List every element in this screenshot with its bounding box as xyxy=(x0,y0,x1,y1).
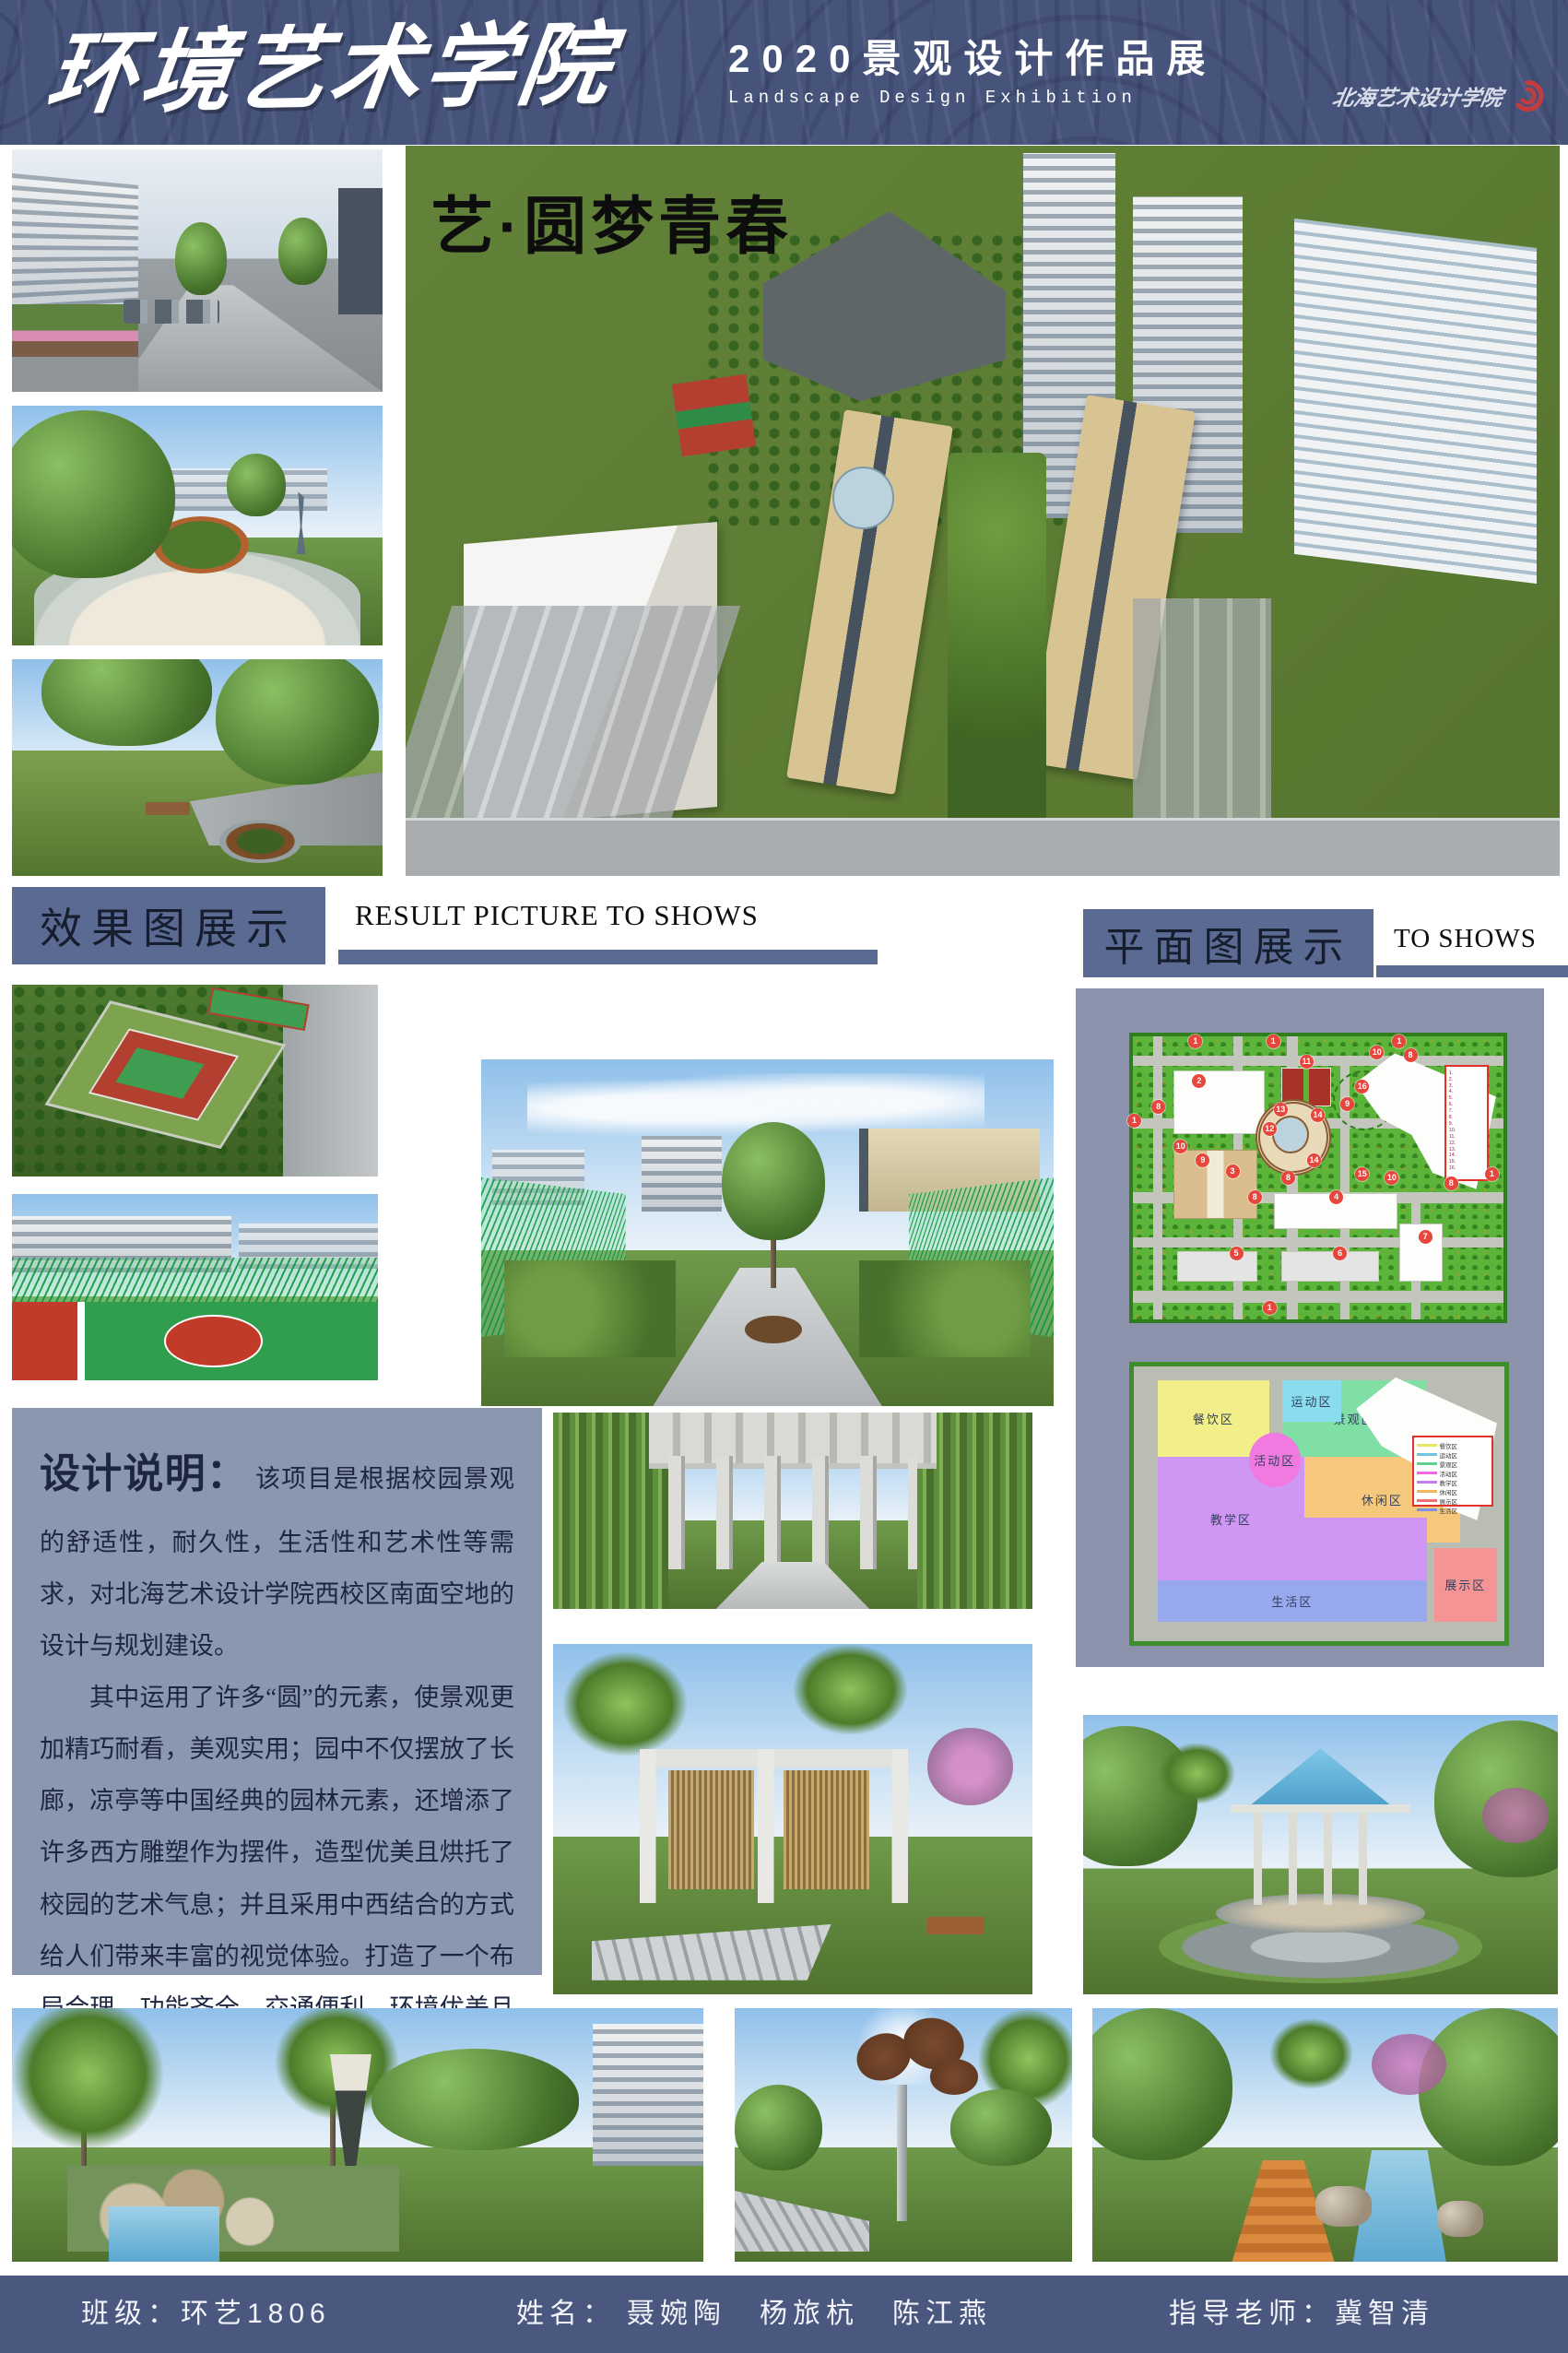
rock xyxy=(1437,2201,1484,2237)
tree xyxy=(1419,2008,1559,2166)
hedge xyxy=(504,1260,676,1357)
hedge xyxy=(859,1260,1031,1357)
zone-label: 展示区 xyxy=(1444,1576,1486,1593)
marker-number: 3 xyxy=(1231,1166,1235,1176)
legend-label: 运动区 xyxy=(1440,1450,1458,1460)
plan-number-marker: 1 xyxy=(1392,1035,1406,1048)
palm-tree xyxy=(793,1644,908,1735)
sculpture-stem xyxy=(897,2085,907,2222)
photo-lattice-pergola xyxy=(553,1644,1032,1994)
bench xyxy=(146,802,190,815)
swirl-logo-icon xyxy=(1511,79,1544,112)
zoning-legend-row: 教学区 xyxy=(1417,1478,1489,1487)
plan-number-marker: 16 xyxy=(1355,1080,1369,1094)
legend-color-chip xyxy=(1417,1472,1437,1474)
parking-lot xyxy=(1133,598,1271,839)
marker-number: 8 xyxy=(1253,1192,1257,1201)
court-line xyxy=(77,1302,85,1380)
legend-label: 休闲区 xyxy=(1440,1487,1458,1496)
legend-label: 景观区 xyxy=(1440,1460,1458,1469)
plan-number-marker: 8 xyxy=(1248,1190,1262,1204)
marker-number: 11 xyxy=(1303,1057,1312,1066)
pergola-columns xyxy=(668,1456,917,1570)
stone-path xyxy=(592,1924,831,1981)
plan-number-marker: 2 xyxy=(1192,1074,1206,1088)
marker-number: 8 xyxy=(1449,1178,1454,1188)
design-notes-text: 设计说明：该项目是根据校园景观的舒适性，耐久性，生活性和艺术性等需求，对北海艺术… xyxy=(40,1432,514,1672)
marker-number: 9 xyxy=(1345,1099,1350,1108)
plan-number-marker: 4 xyxy=(1329,1190,1343,1204)
hero-slogan: 艺·圆梦青春 xyxy=(431,175,794,266)
accent-bar xyxy=(1376,965,1568,977)
plan-number-marker: 1 xyxy=(1127,1114,1141,1128)
flowering-tree xyxy=(1372,2034,1446,2095)
marker-number: 8 xyxy=(1286,1173,1291,1182)
tree xyxy=(371,2049,579,2150)
marker-number: 1 xyxy=(1271,1036,1276,1046)
exhibition-heading: 2020景观设计作品展 Landscape Design Exhibition xyxy=(728,28,1217,108)
zone-label: 生活区 xyxy=(1271,1592,1313,1610)
header-banner: 环境艺术学院 2020景观设计作品展 Landscape Design Exhi… xyxy=(0,0,1568,145)
marker-number: 6 xyxy=(1338,1248,1342,1258)
school-seal: 北海艺术设计学院 xyxy=(1333,79,1544,112)
zoning-legend-row: 餐饮区 xyxy=(1417,1441,1489,1450)
marker-number: 5 xyxy=(1234,1248,1239,1258)
marker-number: 14 xyxy=(1309,1155,1318,1165)
legend-color-chip xyxy=(1417,1508,1437,1511)
tree xyxy=(216,659,379,785)
plan-number-marker: 12 xyxy=(1263,1122,1277,1136)
photo-gazebo xyxy=(1083,1715,1558,1994)
exhibition-poster: 环境艺术学院 2020景观设计作品展 Landscape Design Exhi… xyxy=(0,0,1568,2353)
building xyxy=(338,188,383,314)
rock xyxy=(1315,2186,1372,2227)
gazebo-eave xyxy=(1231,1804,1411,1813)
grid-highrise xyxy=(1294,219,1537,585)
tree-planter-ring xyxy=(219,820,301,863)
marker-number: 10 xyxy=(1387,1173,1397,1182)
school-seal-text: 北海艺术设计学院 xyxy=(1330,80,1505,112)
marker-number: 1 xyxy=(1132,1116,1137,1125)
plan-number-marker: 5 xyxy=(1230,1247,1244,1260)
zone-area: 活动区 xyxy=(1249,1433,1301,1488)
plan-number-marker: 10 xyxy=(1370,1046,1384,1059)
building xyxy=(642,1136,722,1212)
photo-walkway xyxy=(481,1059,1054,1406)
photo-courts-aerial xyxy=(12,985,378,1176)
plan-number-marker: 15 xyxy=(1355,1167,1369,1181)
school-title: 环境艺术学院 xyxy=(39,0,621,145)
legend-color-chip xyxy=(1417,1490,1437,1493)
plan-number-marker: 1 xyxy=(1188,1035,1202,1048)
marker-number: 1 xyxy=(1193,1036,1197,1046)
bench xyxy=(927,1917,984,1934)
tree xyxy=(722,1122,825,1240)
plan-number-marker: 9 xyxy=(1340,1097,1354,1111)
legend-color-chip xyxy=(1417,1444,1437,1447)
plan-number-marker: 14 xyxy=(1311,1108,1325,1122)
zone-area: 生活区 xyxy=(1158,1580,1426,1622)
photo-lawn-path xyxy=(12,659,383,876)
basketball-courts xyxy=(672,374,757,457)
plan-number-marker: 13 xyxy=(1274,1103,1288,1117)
plan-number-marker: 11 xyxy=(1300,1055,1314,1069)
palm-tree xyxy=(1159,1743,1234,1804)
palm-tree xyxy=(12,2008,164,2150)
plan-number-marker: 6 xyxy=(1333,1247,1347,1260)
zoning-legend-row: 运动区 xyxy=(1417,1450,1489,1460)
zoning-legend-row: 景观区 xyxy=(1417,1460,1489,1469)
plan-number-marker: 8 xyxy=(1404,1048,1418,1062)
gazebo-columns xyxy=(1254,1810,1386,1905)
plan-number-marker: 3 xyxy=(1226,1165,1240,1178)
central-garden xyxy=(948,453,1045,833)
round-pond xyxy=(832,467,894,528)
photo-pergola-corridor xyxy=(553,1413,1032,1609)
design-notes-panel: 设计说明：该项目是根据校园景观的舒适性，耐久性，生活性和艺术性等需求，对北海艺术… xyxy=(12,1408,542,1975)
section-subtitle-plans: TO SHOWS xyxy=(1394,924,1537,954)
tree xyxy=(735,2085,822,2171)
legend-color-chip xyxy=(1417,1499,1437,1502)
marker-number: 15 xyxy=(1358,1169,1367,1178)
marker-number: 10 xyxy=(1176,1141,1185,1151)
marker-number: 9 xyxy=(1200,1155,1205,1165)
photo-campus-street xyxy=(12,149,383,392)
zone-label: 休闲区 xyxy=(1362,1491,1403,1508)
legend-color-chip xyxy=(1417,1462,1437,1465)
photo-flower-sculpture xyxy=(735,2008,1072,2262)
zone-label: 餐饮区 xyxy=(1193,1410,1234,1427)
photo-basketball-court xyxy=(12,1194,378,1380)
zoning-legend-row: 展示区 xyxy=(1417,1496,1489,1506)
marker-number: 13 xyxy=(1276,1105,1285,1114)
zone-label: 活动区 xyxy=(1254,1451,1295,1469)
master-plan-markers: 111111211108169813141214815101093848756 xyxy=(1133,1036,1503,1319)
plans-panel: 1.2.3.4.5.6.7.8.9.10.11.12.13.14.15.16. … xyxy=(1076,988,1544,1667)
marker-number: 4 xyxy=(1334,1192,1338,1201)
tree xyxy=(41,659,212,746)
exhibition-title-cn: 2020景观设计作品展 xyxy=(728,28,1217,84)
marker-number: 7 xyxy=(1423,1232,1428,1241)
palm-tree xyxy=(1269,2018,1353,2089)
flowering-tree xyxy=(927,1728,1014,1805)
tree xyxy=(278,218,326,286)
lattice-panel xyxy=(784,1770,870,1889)
advisor-label: 指导老师：冀智清 xyxy=(1169,2276,1434,2353)
zoning-legend-row: 休闲区 xyxy=(1417,1487,1489,1496)
lattice-panel xyxy=(668,1770,755,1889)
plan-number-marker: 1 xyxy=(1485,1167,1499,1181)
marker-number: 1 xyxy=(1397,1036,1401,1046)
legend-label: 餐饮区 xyxy=(1440,1441,1458,1450)
tree xyxy=(950,2089,1052,2166)
tree xyxy=(1092,2008,1232,2160)
zoning-plan-image: 餐饮区景观区运动区休闲区教学区生活区展示区活动区 餐饮区 运动区 xyxy=(1129,1362,1509,1646)
plan-number-marker: 10 xyxy=(1173,1140,1187,1153)
marker-number: 10 xyxy=(1373,1047,1382,1057)
zone-label: 运动区 xyxy=(1291,1392,1332,1410)
palm-tree xyxy=(562,1651,687,1756)
marker-number: 12 xyxy=(1265,1124,1274,1133)
zoning-legend-row: 生活区 xyxy=(1417,1506,1489,1515)
plan-number-marker: 1 xyxy=(1267,1035,1280,1048)
legend-label: 活动区 xyxy=(1440,1469,1458,1478)
marker-number: 1 xyxy=(1490,1169,1494,1178)
marker-number: 8 xyxy=(1156,1102,1161,1111)
legend-color-chip xyxy=(1417,1453,1437,1456)
parked-cars xyxy=(124,300,220,324)
plan-number-marker: 1 xyxy=(1263,1301,1277,1315)
master-plan-image: 1.2.3.4.5.6.7.8.9.10.11.12.13.14.15.16. … xyxy=(1129,1033,1507,1323)
footer-bar: 班级：环艺1806 姓名： 聂婉陶 杨旅杭 陈江燕 指导老师：冀智清 xyxy=(0,2276,1568,2353)
marker-number: 8 xyxy=(1408,1050,1412,1059)
marker-number: 1 xyxy=(1267,1303,1272,1312)
marker-number: 14 xyxy=(1313,1110,1322,1119)
design-notes-heading: 设计说明： xyxy=(40,1451,248,1496)
gazebo-roof xyxy=(1244,1748,1397,1810)
zone-area: 运动区 xyxy=(1282,1380,1341,1422)
legend-color-chip xyxy=(1417,1481,1437,1484)
legend-label: 展示区 xyxy=(1440,1496,1458,1506)
section-title-results: 效果图展示 xyxy=(12,887,325,964)
stream xyxy=(109,2206,219,2263)
zone-area: 展示区 xyxy=(1434,1548,1497,1622)
exhibition-title-en: Landscape Design Exhibition xyxy=(728,88,1217,108)
photo-stream-garden xyxy=(1092,2008,1558,2262)
tree xyxy=(12,410,175,578)
legend-label: 教学区 xyxy=(1440,1478,1458,1487)
stone-path xyxy=(735,2176,869,2252)
zone-area xyxy=(1304,1518,1427,1581)
student-names: 聂婉陶 杨旅杭 陈江燕 xyxy=(627,2276,992,2353)
plan-number-marker: 8 xyxy=(1151,1100,1165,1114)
photo-fountain-plaza xyxy=(12,406,383,645)
perimeter-road xyxy=(406,818,1560,876)
zoning-legend: 餐饮区 运动区 景观区 活动区 xyxy=(1412,1436,1493,1507)
hero-aerial-render: 艺·圆梦青春 xyxy=(406,146,1560,876)
plan-number-marker: 7 xyxy=(1419,1230,1432,1244)
plan-number-marker: 8 xyxy=(1444,1176,1458,1190)
plan-number-marker: 8 xyxy=(1281,1171,1295,1185)
building xyxy=(593,2024,703,2166)
court-red-zone xyxy=(12,1302,77,1380)
zone-label: 教学区 xyxy=(1210,1510,1252,1528)
sculpture-petal xyxy=(930,2059,977,2095)
zoning-legend-row: 活动区 xyxy=(1417,1469,1489,1478)
marker-number: 2 xyxy=(1197,1076,1201,1085)
flowering-tree xyxy=(1482,1788,1549,1844)
center-circle xyxy=(166,1317,261,1366)
section-title-plans: 平面图展示 xyxy=(1083,909,1373,977)
tree xyxy=(227,454,286,516)
legend-label: 生活区 xyxy=(1440,1506,1458,1515)
tree-planter-ring xyxy=(745,1316,802,1343)
court-fence xyxy=(12,1258,378,1307)
names-label: 姓名： xyxy=(516,2276,616,2353)
tree xyxy=(175,222,227,295)
class-label: 班级：环艺1806 xyxy=(81,2276,331,2353)
photo-rock-garden xyxy=(12,2008,703,2262)
marker-number: 16 xyxy=(1358,1082,1367,1091)
accent-bar xyxy=(338,950,878,964)
plan-number-marker: 9 xyxy=(1196,1153,1209,1167)
plan-number-marker: 14 xyxy=(1307,1153,1321,1167)
plan-number-marker: 10 xyxy=(1385,1171,1398,1185)
hedge-flowers xyxy=(12,304,138,392)
section-subtitle-results: RESULT PICTURE TO SHOWS xyxy=(355,899,759,932)
